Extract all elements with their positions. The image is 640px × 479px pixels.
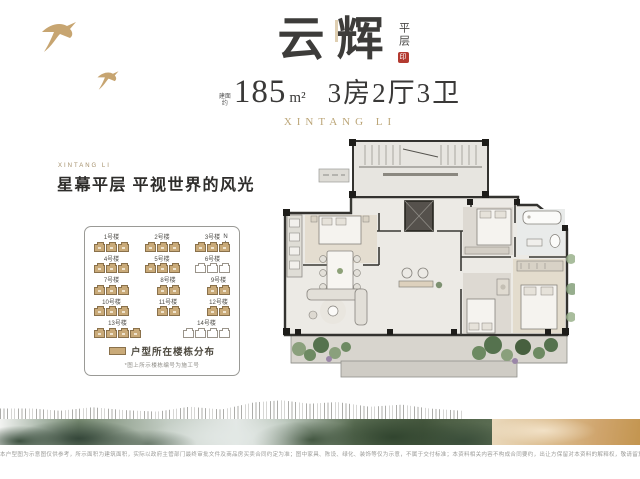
building-unit-icon: [145, 265, 156, 273]
sitemap-legend: 户型所在楼栋分布: [92, 344, 232, 358]
building-11号楼: 11号楼: [157, 300, 180, 317]
building-unit-icon: [106, 287, 117, 295]
building-unit-icon: [145, 244, 156, 252]
building-unit-icon: [94, 308, 105, 316]
building-unit-icon: [94, 330, 105, 338]
building-unit-icon: [106, 308, 117, 316]
area-value: 185: [234, 74, 287, 111]
floor-plan: [283, 138, 575, 396]
building-label: 9号楼: [211, 278, 226, 285]
building-unit-icon: [118, 244, 129, 252]
building-unit-icon: [169, 308, 180, 316]
building-8号楼: 8号楼: [157, 278, 180, 295]
building-label: 3号楼: [205, 235, 220, 242]
specs-row: 建面 约 185 m² 3房2厅3卫: [219, 71, 461, 112]
building-6号楼: 6号楼: [195, 257, 230, 274]
bedroom-master: [513, 259, 565, 333]
building-label: 5号楼: [154, 257, 169, 264]
disclaimer-text: 本户型图为示意图仅供参考，所示面积为建筑面积，实际以政府主管部门最终审批文件及商…: [0, 450, 640, 458]
misty-forest-photo: [0, 419, 492, 445]
gold-divider: [335, 20, 338, 42]
golden-sand-photo: [492, 419, 640, 445]
building-label: 1号楼: [104, 235, 119, 242]
building-2号楼: 2号楼: [145, 235, 180, 252]
building-unit-icon: [106, 330, 117, 338]
building-unit-icon: [157, 308, 168, 316]
building-unit-icon: [195, 244, 206, 252]
building-unit-icon: [106, 244, 117, 252]
building-unit-icon: [219, 287, 230, 295]
building-5号楼: 5号楼: [145, 257, 180, 274]
page-title: 云辉: [272, 16, 396, 65]
building-unit-icon: [207, 330, 218, 338]
building-unit-icon: [183, 330, 194, 338]
building-unit-icon: [94, 265, 105, 273]
swallow-icon: [40, 20, 78, 54]
building-unit-icon: [207, 244, 218, 252]
stair-core: [353, 141, 488, 197]
mountain-line-pattern: [0, 398, 462, 420]
building-unit-icon: [118, 330, 129, 338]
building-label: 14号楼: [197, 321, 216, 328]
area-unit: m²: [289, 90, 305, 107]
building-label: 10号楼: [102, 300, 121, 307]
building-unit-icon: [130, 330, 141, 338]
building-unit-icon: [207, 308, 218, 316]
eyebrow-label: XINTANG LI: [58, 163, 111, 169]
brand-name: XINTANG LI: [284, 116, 396, 128]
bedroom-right-top: [463, 207, 513, 255]
building-unit-icon: [157, 265, 168, 273]
title-row: 云辉 平层 印: [272, 16, 409, 65]
sitemap-panel: N 1号楼2号楼3号楼4号楼5号楼6号楼7号楼8号楼9号楼10号楼11号楼12号…: [84, 226, 240, 376]
building-unit-icon: [94, 244, 105, 252]
swallow-icon: [96, 70, 120, 91]
sitemap-row: 7号楼8号楼9号楼: [92, 278, 232, 295]
building-label: 11号楼: [159, 300, 177, 307]
building-12号楼: 12号楼: [207, 300, 230, 317]
red-seal-icon: 印: [398, 52, 409, 63]
building-label: 2号楼: [154, 235, 169, 242]
building-unit-icon: [118, 308, 129, 316]
building-unit-icon: [118, 287, 129, 295]
building-unit-icon: [219, 265, 230, 273]
building-label: 8号楼: [160, 278, 175, 285]
building-10号楼: 10号楼: [94, 300, 129, 317]
section-headline: 星幕平层 平视世界的风光: [57, 171, 255, 195]
building-14号楼: 14号楼: [183, 321, 230, 338]
building-unit-icon: [219, 308, 230, 316]
building-unit-icon: [207, 287, 218, 295]
dining-area: [320, 251, 361, 295]
elevator-shaft: [405, 201, 433, 231]
building-unit-icon: [219, 244, 230, 252]
sitemap-row: 4号楼5号楼6号楼: [92, 257, 232, 274]
landscape-photo-strip: [0, 419, 640, 445]
sitemap-note: *图上所示楼栋编号为施工号: [92, 361, 232, 369]
room-count: 3房2厅3卫: [328, 71, 462, 110]
building-unit-icon: [157, 287, 168, 295]
area-prefix: 建面 约: [219, 94, 231, 108]
building-7号楼: 7号楼: [94, 278, 129, 295]
utility-box: [319, 169, 349, 182]
building-unit-icon: [169, 265, 180, 273]
bedroom-middle: [463, 273, 511, 333]
building-unit-icon: [169, 287, 180, 295]
building-label: 4号楼: [104, 257, 119, 264]
building-9号楼: 9号楼: [207, 278, 230, 295]
sitemap-row: 10号楼11号楼12号楼: [92, 300, 232, 317]
building-label: 12号楼: [209, 300, 228, 307]
building-unit-icon: [106, 265, 117, 273]
building-1号楼: 1号楼: [94, 235, 129, 252]
building-unit-icon: [219, 330, 230, 338]
legend-label: 户型所在楼栋分布: [131, 344, 215, 358]
page: 云辉 平层 印 建面 约 185 m² 3房2厅3卫 XINTANG LI XI…: [0, 0, 640, 479]
building-unit-icon: [169, 244, 180, 252]
kitchen-counter: [287, 215, 302, 277]
legend-swatch: [109, 347, 126, 355]
building-unit-icon: [157, 244, 168, 252]
sitemap-row: 13号楼14号楼: [92, 321, 232, 338]
building-13号楼: 13号楼: [94, 321, 141, 338]
building-4号楼: 4号楼: [94, 257, 129, 274]
building-unit-icon: [195, 330, 206, 338]
building-unit-icon: [207, 265, 218, 273]
building-unit-icon: [94, 287, 105, 295]
sitemap-row: 1号楼2号楼3号楼: [92, 235, 232, 252]
building-unit-icon: [118, 265, 129, 273]
sitemap-rows: 1号楼2号楼3号楼4号楼5号楼6号楼7号楼8号楼9号楼10号楼11号楼12号楼1…: [92, 235, 232, 338]
building-label: 6号楼: [205, 257, 220, 264]
building-unit-icon: [195, 265, 206, 273]
building-label: 13号楼: [108, 321, 127, 328]
bathroom-top-right: [517, 209, 565, 255]
building-label: 7号楼: [104, 278, 119, 285]
title-tag-text: 平层: [398, 22, 409, 48]
title-tag: 平层 印: [398, 22, 409, 63]
header: 云辉 平层 印 建面 约 185 m² 3房2厅3卫 XINTANG LI: [205, 16, 475, 128]
